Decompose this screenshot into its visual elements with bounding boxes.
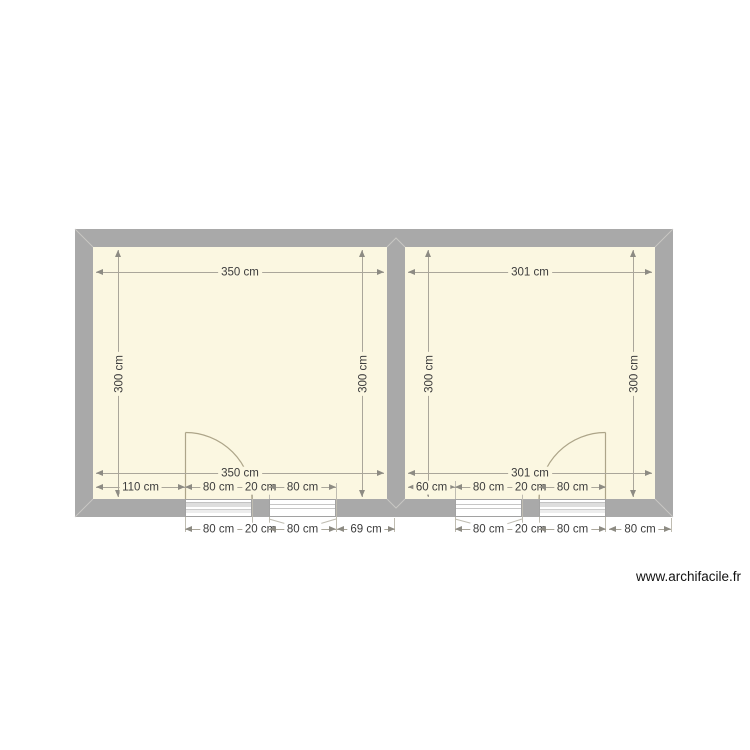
- arrow-right-icon: [599, 526, 606, 532]
- dimension-label[interactable]: 300 cm: [422, 352, 437, 396]
- dim-left-outer-seg-4: 69 cm: [337, 529, 395, 530]
- dimension-label[interactable]: 80 cm: [554, 522, 591, 537]
- arrow-left-icon: [96, 470, 103, 476]
- dimension-label[interactable]: 300 cm: [627, 352, 642, 396]
- dimension-label[interactable]: 350 cm: [218, 265, 262, 280]
- dim-left-room-top-width: 350 cm: [96, 272, 384, 273]
- arrow-left-icon: [455, 484, 462, 490]
- arrow-up-icon: [115, 250, 121, 257]
- dim-right-outer-seg-3: 80 cm: [539, 529, 606, 530]
- arrow-left-icon: [539, 484, 546, 490]
- arrow-left-icon: [185, 526, 192, 532]
- dim-right-room-bottom-width: 301 cm: [408, 473, 652, 474]
- arrow-right-icon: [645, 470, 652, 476]
- dim-right-room-height-left: 300 cm: [428, 250, 429, 497]
- arrow-left-icon: [408, 269, 415, 275]
- dimension-label[interactable]: 80 cm: [621, 522, 658, 537]
- dim-right-outer-seg-4: 80 cm: [609, 529, 671, 530]
- arrow-right-icon: [664, 526, 671, 532]
- arrow-left-icon: [269, 484, 276, 490]
- arrow-left-icon: [269, 526, 276, 532]
- arrow-right-icon: [599, 484, 606, 490]
- dim-left-outer-seg-3: 80 cm: [269, 529, 336, 530]
- dimension-label[interactable]: 110 cm: [119, 480, 162, 495]
- arrow-left-icon: [185, 484, 192, 490]
- arrow-right-icon: [377, 470, 384, 476]
- arrow-left-icon: [539, 526, 546, 532]
- dimension-label[interactable]: 60 cm: [413, 480, 450, 495]
- dimension-label[interactable]: 80 cm: [284, 480, 321, 495]
- arrow-left-icon: [455, 526, 462, 532]
- arrow-right-icon: [377, 269, 384, 275]
- arrow-up-icon: [359, 250, 365, 257]
- arrow-up-icon: [630, 250, 636, 257]
- arrow-left-icon: [609, 526, 616, 532]
- arrow-left-icon: [337, 526, 344, 532]
- dim-left-inner-seg-1: 110 cm: [96, 487, 185, 488]
- arrow-down-icon: [630, 490, 636, 497]
- dim-right-room-height-right: 300 cm: [633, 250, 634, 497]
- arrow-left-icon: [96, 484, 103, 490]
- arrow-right-icon: [329, 526, 336, 532]
- french-door-window[interactable]: [185, 499, 252, 517]
- dim-left-inner-seg-3: 20 cm: [252, 487, 269, 488]
- dimension-label[interactable]: 80 cm: [284, 522, 321, 537]
- dim-right-outer-seg-2: 20 cm: [522, 529, 539, 530]
- room-right-floor[interactable]: [405, 247, 655, 499]
- dimension-label[interactable]: 300 cm: [112, 352, 127, 396]
- dimension-label[interactable]: 80 cm: [554, 480, 591, 495]
- room-left-floor[interactable]: [93, 247, 387, 499]
- arrow-up-icon: [425, 250, 431, 257]
- dim-right-inner-seg-4: 80 cm: [539, 487, 606, 488]
- dimension-label[interactable]: 69 cm: [347, 522, 384, 537]
- dimension-label[interactable]: 80 cm: [200, 522, 237, 537]
- dim-right-inner-seg-3: 20 cm: [522, 487, 539, 488]
- dim-right-room-top-width: 301 cm: [408, 272, 652, 273]
- arrow-down-icon: [359, 490, 365, 497]
- dimension-label[interactable]: 301 cm: [508, 265, 552, 280]
- dimension-label[interactable]: 80 cm: [200, 480, 237, 495]
- dimension-label[interactable]: 80 cm: [470, 480, 507, 495]
- dimension-label[interactable]: 350 cm: [218, 466, 262, 481]
- arrow-right-icon: [178, 484, 185, 490]
- dim-left-outer-seg-2: 20 cm: [252, 529, 269, 530]
- dim-left-inner-seg-4: 80 cm: [269, 487, 336, 488]
- dim-left-room-height-right: 300 cm: [362, 250, 363, 497]
- dimension-label[interactable]: 300 cm: [356, 352, 371, 396]
- arrow-left-icon: [408, 470, 415, 476]
- arrow-right-icon: [388, 526, 395, 532]
- floor-plan-canvas: 350 cm 300 cm 300 cm 350 cm 110 cm 80 cm…: [0, 0, 750, 750]
- dim-left-room-height-left: 300 cm: [118, 250, 119, 497]
- dimension-label[interactable]: 80 cm: [470, 522, 507, 537]
- french-door-window[interactable]: [539, 499, 606, 517]
- watermark: www.archifacile.fr: [636, 569, 741, 584]
- dim-right-inner-seg-1: 60 cm: [408, 487, 455, 488]
- arrow-right-icon: [645, 269, 652, 275]
- arrow-right-icon: [329, 484, 336, 490]
- window[interactable]: [269, 499, 336, 517]
- dim-left-room-bottom-width: 350 cm: [96, 473, 384, 474]
- dimension-label[interactable]: 301 cm: [508, 466, 552, 481]
- window[interactable]: [455, 499, 522, 517]
- arrow-left-icon: [96, 269, 103, 275]
